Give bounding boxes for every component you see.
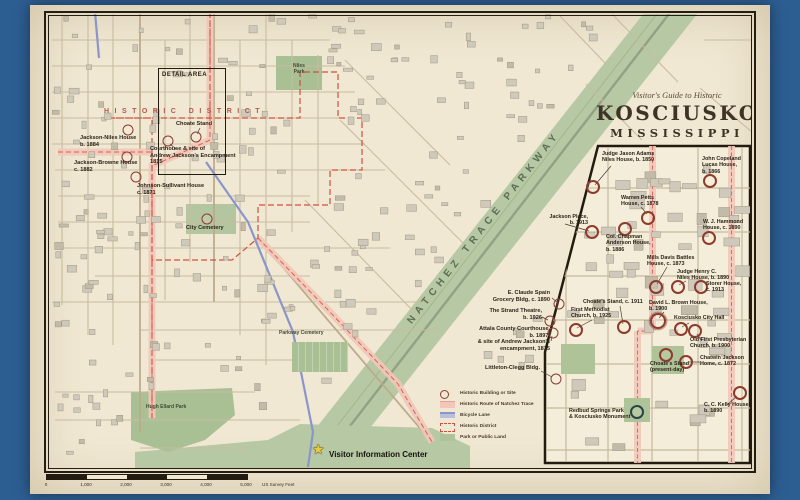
- historic-district-label: HISTORIC DISTRICT: [104, 108, 265, 115]
- legend-label: Historic District: [460, 424, 496, 429]
- legend-item-park-land: Park or Public Land: [432, 433, 540, 444]
- inset-marker-jackson-place[interactable]: [585, 225, 599, 239]
- site-label: Choate Stand: [176, 121, 212, 128]
- inset-site-label: Judge Henry C. Niles House, b. 1890: [677, 269, 729, 282]
- map-title: Visitor's Guide to Historic KOSCIUSKO MI…: [596, 90, 758, 140]
- inset-marker-jason-niles[interactable]: [586, 180, 600, 194]
- inset-marker-david-brown[interactable]: [650, 313, 666, 329]
- legend-label: Historic Route of Natchez Trace: [460, 402, 534, 407]
- map-canvas: NATCHEZ TRACE PARKWAY HISTORIC DISTRICT …: [0, 0, 800, 500]
- inset-site-label: Warren Petts House, c. 1878: [621, 195, 658, 208]
- title-kicker: Visitor's Guide to Historic: [596, 90, 758, 100]
- site-label: The Strand Theatre, b. 1926: [486, 308, 542, 321]
- park-land-swatch-icon: [440, 434, 455, 441]
- inset-marker-cc-kelly[interactable]: [733, 386, 747, 400]
- detail-area-label: DETAIL AREA: [162, 72, 207, 78]
- kosciusko-map-page: { "title": { "kicker": "Visitor's Guide …: [0, 0, 800, 500]
- inset-marker-redbud-monument[interactable]: [630, 405, 644, 419]
- scale-tick: 3,000: [160, 482, 172, 487]
- sports-field: [292, 342, 348, 372]
- inset-site-label: Jackson Place, b. 1913: [532, 214, 588, 227]
- site-marker-choate-stand[interactable]: [191, 132, 202, 143]
- legend-label: Bicycle Lane: [460, 413, 490, 418]
- inset-marker-henry-niles[interactable]: [671, 280, 685, 294]
- site-label: Attala County Courthouse, b. 1897, & sit…: [468, 326, 550, 352]
- site-marker-city-cemetery[interactable]: [202, 214, 213, 225]
- scale-tick: 2,000: [120, 482, 132, 487]
- historic-district-swatch-icon: [440, 423, 455, 432]
- inset-site-label: W. J. Hammond House, c. 1890: [703, 219, 743, 232]
- legend-item-historic-district: Historic District: [432, 422, 540, 433]
- niles-park-label: Niles Park: [276, 63, 322, 75]
- inset-marker-hammond[interactable]: [702, 231, 716, 245]
- inset-marker-choates-stand-1911[interactable]: [617, 320, 631, 334]
- site-label: Littleton-Clegg Bldg.: [484, 365, 540, 372]
- inset-marker-city-hall[interactable]: [674, 322, 688, 336]
- bicycle-lane-swatch-icon: [440, 412, 455, 418]
- site-label: Courthouse & site of Andrew Jackson's En…: [150, 146, 236, 166]
- scale-tick: 4,000: [200, 482, 212, 487]
- inset-marker-first-methodist[interactable]: [569, 323, 583, 337]
- inset-marker-old-presbyterian[interactable]: [688, 324, 702, 338]
- legend-item-historic-site: Historic Building or Site: [432, 389, 540, 400]
- site-label: City Cemetery: [186, 225, 224, 232]
- site-label: E. Claude Spain Grocery Bldg, c. 1890: [488, 290, 550, 303]
- inset-marker-choates-stand-present[interactable]: [659, 348, 673, 362]
- inset-site-label: Col. Chapman Anderson House, b. 1886: [606, 234, 651, 253]
- inset-site-label: First Methodist Church, b. 1925: [571, 307, 611, 320]
- scale-tick: 1,000: [80, 482, 92, 487]
- inset-site-label: Mills Davis Battles House, c. 1873: [647, 255, 694, 268]
- legend-label: Park or Public Land: [460, 435, 506, 440]
- inset-site-label: John Copeland Lucas House, b. 1866: [702, 156, 741, 175]
- site-marker-courthouse-encampment[interactable]: [163, 136, 174, 147]
- inset-marker-lucas[interactable]: [703, 174, 717, 188]
- visitor-center-label: Visitor Information Center: [329, 450, 428, 459]
- inset-site-label: Judge Jason Adams Niles House, b. 1850: [602, 151, 654, 164]
- site-marker-jackson-niles[interactable]: [123, 125, 134, 136]
- site-marker-strand-theatre[interactable]: [545, 316, 556, 327]
- site-label: Jackson-Browne House c. 1882: [74, 160, 137, 173]
- scale-tick: 5,000: [240, 482, 252, 487]
- scale-unit-label: US Survey Feet: [262, 482, 294, 487]
- historic-site-swatch-icon: [440, 390, 449, 399]
- legend-item-trace-route: Historic Route of Natchez Trace: [432, 400, 540, 411]
- inset-site-label: David L. Brown House, b. 1900: [649, 300, 708, 313]
- inset-site-label: Storer House, c. 1913: [706, 281, 741, 294]
- inset-marker-petts[interactable]: [641, 211, 655, 225]
- inset-site-label: Choate's Stand, c. 1911: [583, 299, 643, 305]
- scale-bar: 0 1,000 2,000 3,000 4,000 5,000 US Surve…: [46, 474, 366, 490]
- map-legend: Historic Building or Site Historic Route…: [432, 389, 540, 444]
- inset-site-label: Redbud Springs Park & Kosciusko Monument: [569, 408, 630, 421]
- site-label: Jackson-Niles House b. 1884: [80, 135, 136, 148]
- inset-site-label: Chatwin Jackson Home, c. 1872: [700, 355, 744, 368]
- scale-tick: 0: [45, 482, 48, 487]
- site-label: Johnson-Sullivant House c. 1871: [137, 183, 204, 196]
- inset-site-label: C. C. Kelly House b. 1890: [704, 402, 749, 415]
- scale-bar-segments: [46, 474, 248, 480]
- hugh-ellard-park-label: Hugh Ellard Park: [146, 404, 186, 410]
- parkway-cemetery-label: Parkway Cemetery: [279, 330, 323, 336]
- inset-site-label: Choate's Stand (present-day): [650, 361, 689, 374]
- inset-site-label: Kosciusko City Hall: [674, 315, 724, 321]
- legend-label: Historic Building or Site: [460, 391, 516, 396]
- title-city: KOSCIUSKO: [596, 101, 758, 125]
- inset-site-label: Old First Presbyterian Church, b. 1900: [690, 337, 746, 350]
- title-state: MISSISSIPPI: [596, 126, 758, 140]
- site-marker-littleton-clegg[interactable]: [551, 374, 562, 385]
- inset-marker-battles[interactable]: [649, 280, 663, 294]
- site-marker-spain-grocery[interactable]: [554, 299, 565, 310]
- trace-route-swatch-icon: [440, 401, 455, 408]
- map-graphics: [0, 0, 800, 500]
- visitor-center-star-icon[interactable]: ★: [312, 441, 325, 458]
- legend-item-bicycle-lane: Bicycle Lane: [432, 411, 540, 422]
